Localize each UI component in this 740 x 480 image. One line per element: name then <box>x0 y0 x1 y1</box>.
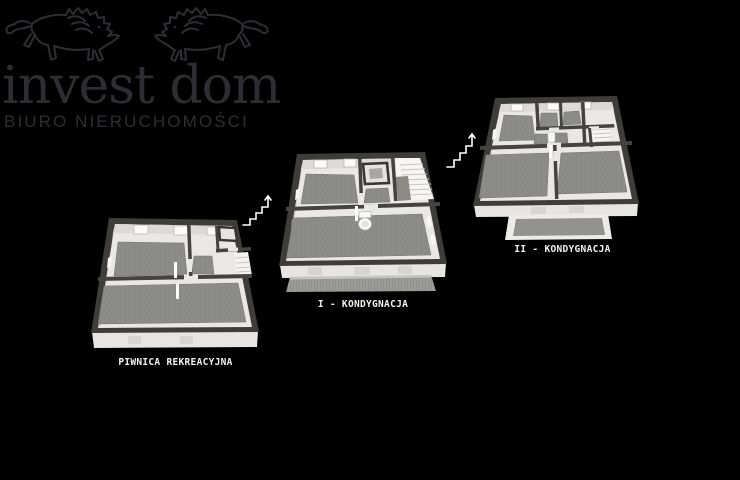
floorplan-second-storey-drawing <box>469 88 644 244</box>
stairs-up-icon <box>446 130 478 168</box>
floorplan-label-first-storey: I - KONDYGNACJA <box>274 299 452 310</box>
logo-subtitle: BIURO NIERUCHOMOŚCI <box>4 112 249 132</box>
floorplan-basement: PIWNICA REKREACYJNA <box>88 206 263 368</box>
floorplan-label-basement: PIWNICA REKREACYJNA <box>88 357 263 368</box>
real-estate-floorplan-graphic: invest dom BIURO NIERUCHOMOŚCI <box>0 0 740 480</box>
floorplan-label-second-storey: II - KONDYGNACJA <box>469 244 644 255</box>
floorplan-first-storey-drawing <box>274 144 452 296</box>
floorplan-basement-drawing <box>88 206 263 354</box>
lions-icon <box>2 3 272 63</box>
floorplan-second-storey: II - KONDYGNACJA <box>469 88 644 255</box>
logo-title: invest dom <box>2 60 280 112</box>
stairs-up-icon <box>242 192 274 226</box>
logo: invest dom BIURO NIERUCHOMOŚCI <box>0 0 310 140</box>
floorplan-first-storey: I - KONDYGNACJA <box>274 144 452 310</box>
